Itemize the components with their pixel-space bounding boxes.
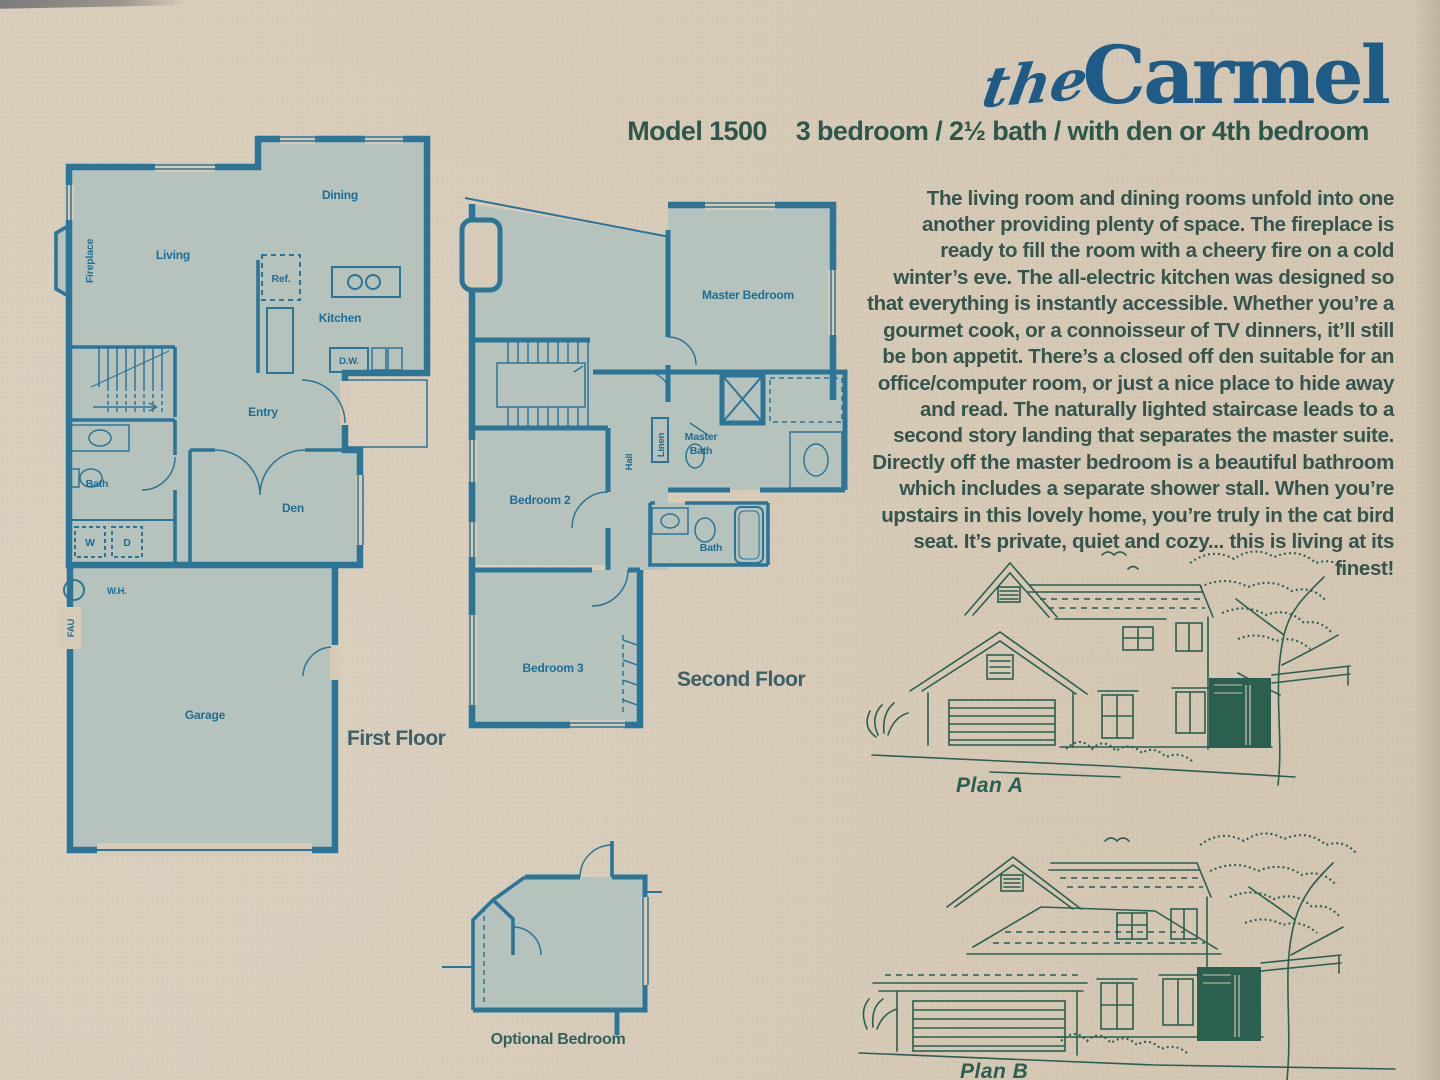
optional-bedroom-plan: Optional Bedroom [440,835,680,1050]
caption-optional-bedroom: Optional Bedroom [491,1031,626,1048]
entry-gate [1209,678,1271,748]
label-master-bath-1: Master [685,431,718,443]
label-washer: W [85,537,95,549]
scanned-brochure-page: the Carmel Model 1500 3 bedroom / 2½ bat… [0,0,1440,1080]
plan-b-elevation [855,815,1440,1080]
label-bedroom3: Bedroom 3 [523,661,584,675]
entry-gate-b [1197,967,1261,1041]
scan-edge-artifact [0,0,186,9]
birds [1102,552,1138,569]
plan-a-elevation [870,535,1415,785]
label-fireplace: Fireplace [84,238,96,283]
label-den: Den [282,501,304,515]
chimney [462,220,500,290]
description-paragraph: The living room and dining rooms unfold … [864,186,1394,583]
caption-plan-b: Plan B [960,1060,1028,1080]
label-linen: Linen [656,432,667,457]
label-bedroom2: Bedroom 2 [510,493,571,507]
model-specs: 3 bedroom / 2½ bath / with den or 4th be… [796,116,1369,146]
first-floor-plan: Dining Living Fireplace Ref. Kitchen D.W… [55,125,445,870]
title-the: the [978,47,1093,122]
caption-first-floor: First Floor [347,727,446,750]
label-water-heater: W.H. [107,586,127,597]
label-kitchen: Kitchen [319,311,362,325]
model-subtitle: Model 1500 3 bedroom / 2½ bath / with de… [598,116,1398,147]
label-garage: Garage [185,708,226,722]
label-dryer: D [123,537,131,549]
optional-door-arc [580,845,612,877]
label-bath2: Bath [700,542,723,554]
house-plan-a [867,551,1350,785]
label-ref: Ref. [271,273,290,285]
caption-second-floor: Second Floor [677,668,806,691]
birds-b [1105,838,1129,841]
garage-door [949,700,1055,745]
label-hall: Hall [624,454,635,471]
label-master-bath-2: Bath [690,445,713,457]
label-fau: FAU [66,618,77,637]
label-living: Living [156,248,190,262]
label-dw: D.W. [339,356,359,367]
house-plan-b [859,833,1395,1080]
title-carmel: Carmel [1082,28,1388,122]
label-master-bedroom: Master Bedroom [702,288,794,302]
caption-plan-a: Plan A [956,774,1024,798]
brochure-title: the Carmel [984,28,1388,122]
label-bath: Bath [86,478,109,490]
label-dining: Dining [322,188,358,202]
second-floor-plan: Master Bedroom Hall Linen Master Bath Be… [450,190,850,735]
entry-porch [345,380,427,447]
garage-door-b [913,1001,1065,1051]
label-entry: Entry [248,405,278,419]
model-number: Model 1500 [627,116,767,146]
tree [1190,551,1346,785]
tree-b [1200,833,1356,1080]
page-edge-shadow [1414,0,1440,1080]
